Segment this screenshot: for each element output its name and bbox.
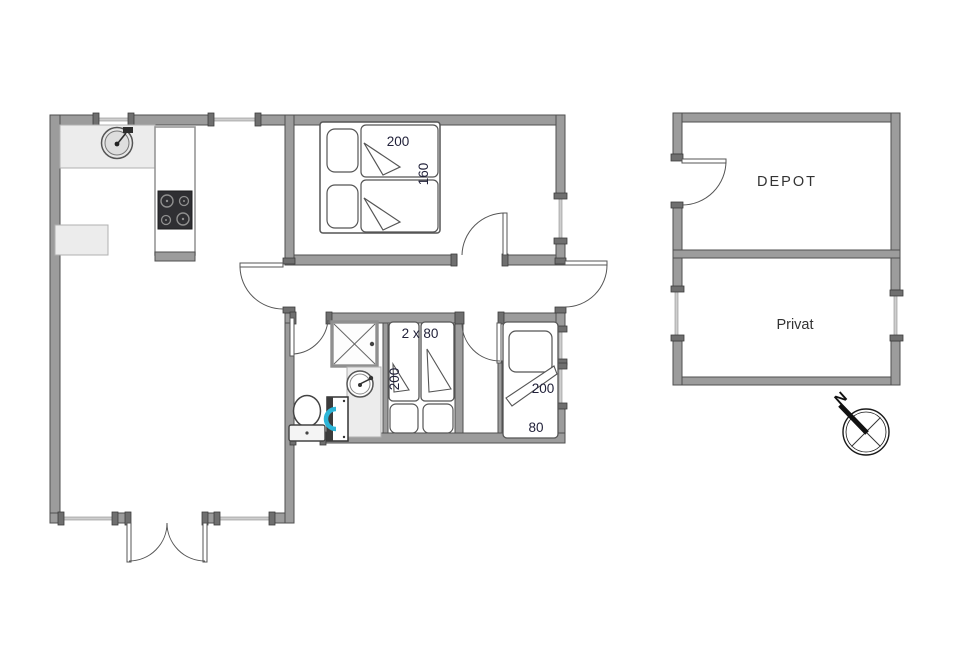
main-house-walls xyxy=(50,115,565,523)
bunk-bed-length-label: 200 xyxy=(387,368,402,391)
compass-north-label: N xyxy=(831,389,850,409)
hallway-west-door xyxy=(240,258,295,313)
main-bedroom-door xyxy=(451,213,508,266)
hallway-east-door xyxy=(555,258,607,313)
annex-walls xyxy=(673,113,900,385)
single-bed-width-label: 80 xyxy=(528,420,543,435)
main-bed-width-label: 160 xyxy=(416,163,431,186)
privat-room-label: Privat xyxy=(776,317,813,333)
bathroom xyxy=(289,322,381,441)
main-bed-length-label: 200 xyxy=(387,134,410,149)
entrance-double-door xyxy=(125,512,208,562)
window xyxy=(671,286,684,341)
compass-icon: N xyxy=(831,389,889,455)
window xyxy=(208,113,261,126)
bathroom-door xyxy=(290,312,332,356)
floor-plan: 200 160 2 x 80 200 200 80 DEPOT Privat N xyxy=(0,0,962,667)
window xyxy=(93,113,134,126)
depot-room-label: DEPOT xyxy=(757,174,817,190)
window xyxy=(890,290,903,341)
shower-icon xyxy=(332,322,377,366)
kitchen-sink-icon xyxy=(102,127,134,159)
bathroom-sink-icon xyxy=(347,371,373,397)
bunk-bed-label: 2 x 80 xyxy=(402,326,439,341)
window xyxy=(58,512,118,525)
window xyxy=(554,193,567,244)
floor-plan-drawing: 200 160 2 x 80 200 200 80 DEPOT Privat N xyxy=(0,0,962,667)
side-counter xyxy=(55,225,108,255)
single-bed-length-label: 200 xyxy=(532,381,555,396)
stove-icon xyxy=(158,191,192,229)
depot-door xyxy=(671,154,726,208)
washing-machine-icon xyxy=(326,397,348,441)
window xyxy=(214,512,275,525)
kitchen xyxy=(55,125,195,261)
